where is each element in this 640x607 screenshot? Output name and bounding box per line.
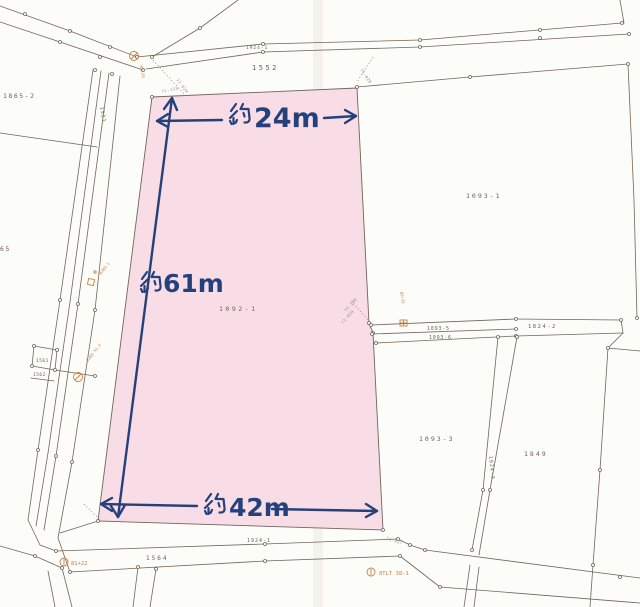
cadastral-map: 1865-2 65 1552 1924-1 1093-1 1092-1 1093… (0, 0, 640, 607)
benchmark-square-icon (87, 271, 96, 286)
benchmark-label-mid-lower: 8288 51-2 (85, 342, 103, 363)
parcel-label-1561: 1561 (36, 358, 49, 364)
parcel-label-1849: 1849 (524, 450, 548, 458)
dimension-top-label: 24m (254, 103, 320, 134)
parcel-label-1093-3: 1093-3 (419, 435, 454, 443)
parcel-label-1093-1: 1093-1 (466, 192, 501, 200)
survey-label-71-119: 71-119 (161, 86, 179, 94)
parcel-label-65: 65 (0, 245, 11, 253)
parcel-label-1562: 1562 (33, 372, 46, 378)
survey-label-71-027: 71-027 (386, 536, 404, 545)
road-label-1521: 1521 (98, 106, 107, 123)
dimension-left-label: 61m (163, 269, 224, 298)
road-label-1924-1-bottom: 1924-1 (247, 538, 271, 544)
dimension-bottom-label: 42m (229, 493, 290, 522)
benchmark-label-top: B1+29 (139, 65, 146, 78)
survey-label-71-028: 71-028 (359, 68, 373, 85)
road-label-1924-3: 1924-3 (487, 456, 495, 481)
subject-parcel-label: 1092-1 (219, 305, 257, 313)
parcel-label-1824-2: 1824-2 (528, 324, 557, 330)
benchmark-square-icon-2 (400, 320, 407, 326)
parcel-label-1552: 1552 (252, 64, 279, 72)
parcel-label-1865-2: 1865-2 (3, 92, 35, 100)
benchmark-circle1-icon-bottom-right (367, 568, 375, 576)
parcel-label-1093-6: 1093-6 (429, 335, 452, 341)
benchmark-label-bottom-right: 8TLT 38-1 (379, 571, 409, 577)
road-label-1564: 1564 (146, 555, 168, 562)
parcel-label-1093-5: 1093-5 (427, 326, 450, 332)
road-label-1924-1-top: 1924-1 (246, 45, 268, 51)
benchmark-label-bottom-left: 81+22 (71, 561, 88, 567)
benchmark-label-strip: B5+15 (399, 291, 406, 304)
map-canvas: 1865-2 65 1552 1924-1 1093-1 1092-1 1093… (0, 0, 640, 607)
